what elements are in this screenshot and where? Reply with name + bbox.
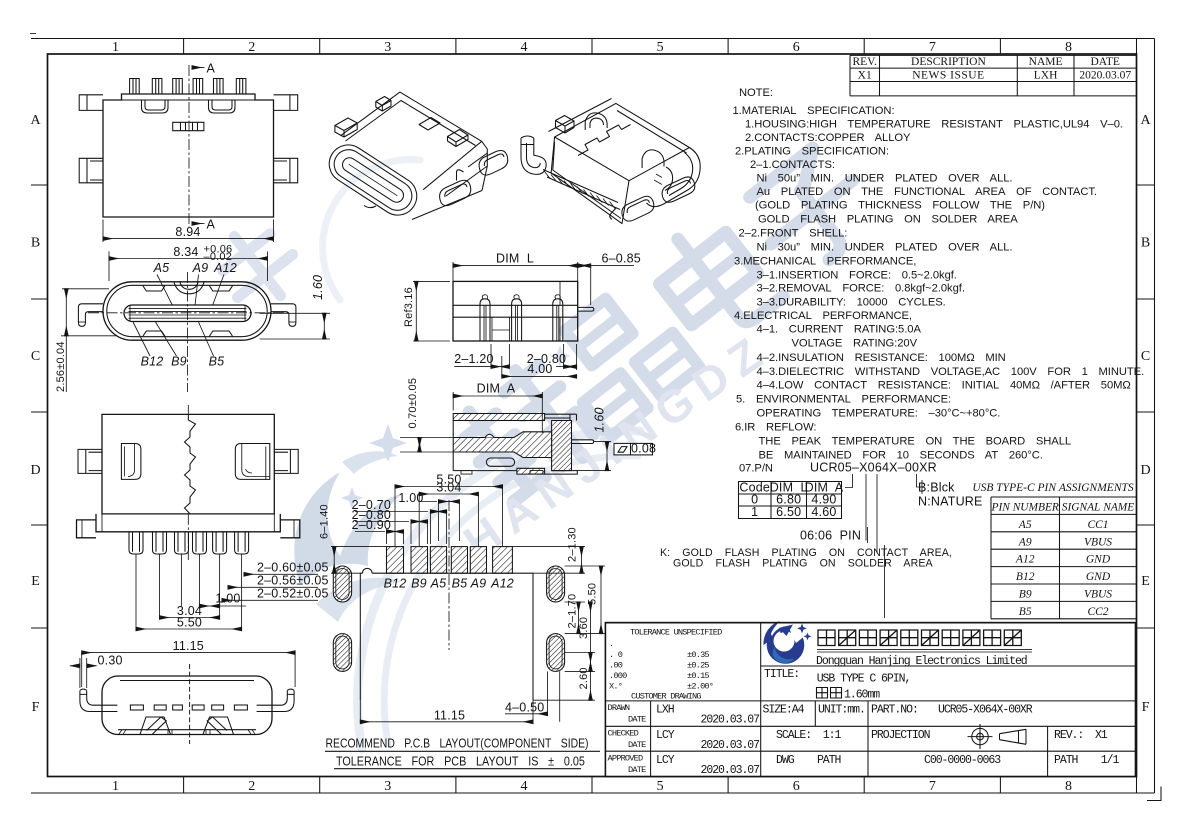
svg-text:B: B bbox=[1141, 236, 1150, 251]
svg-text:3–2.REMOVAL FORCE: 0.8kgf~2.: 3–2.REMOVAL FORCE: 0.8kgf~2.0kgf. bbox=[757, 283, 965, 295]
svg-text:VBUS: VBUS bbox=[1084, 589, 1112, 601]
svg-text:1.00: 1.00 bbox=[215, 592, 240, 606]
svg-text:A5: A5 bbox=[1018, 519, 1032, 531]
svg-text:4: 4 bbox=[521, 779, 528, 794]
svg-text:2–2.FRONT SHELL:: 2–2.FRONT SHELL: bbox=[739, 228, 848, 240]
svg-text:Ni 30u” MIN. UNDER PLATED: Ni 30u” MIN. UNDER PLATED OVER ALL. bbox=[757, 242, 1013, 254]
svg-text:X.°: X.° bbox=[609, 682, 622, 692]
svg-text:LXH: LXH bbox=[1034, 70, 1058, 82]
svg-text:3.MECHANICAL PERFORMANCE,: 3.MECHANICAL PERFORMANCE, bbox=[734, 256, 916, 268]
svg-text:DATE: DATE bbox=[628, 765, 646, 775]
svg-text:4.60: 4.60 bbox=[811, 505, 836, 519]
svg-text:±0.15: ±0.15 bbox=[687, 671, 709, 681]
svg-text:4–0.50: 4–0.50 bbox=[505, 700, 544, 714]
svg-text:1.HOUSING:HIGH TEMPERATURE R: 1.HOUSING:HIGH TEMPERATURE RESISTANT PLA… bbox=[745, 119, 1123, 131]
svg-text:B12: B12 bbox=[384, 577, 407, 591]
svg-text:7: 7 bbox=[929, 779, 936, 794]
svg-text:UCR05–X064X–00XR: UCR05–X064X–00XR bbox=[810, 461, 937, 475]
svg-text:2–0.60±0.05: 2–0.60±0.05 bbox=[257, 561, 329, 575]
svg-text:2–1.CONTACTS:: 2–1.CONTACTS: bbox=[750, 159, 835, 171]
svg-text:B5: B5 bbox=[452, 577, 468, 591]
svg-text:NOTE:: NOTE: bbox=[739, 87, 773, 99]
svg-text:A: A bbox=[207, 62, 216, 76]
svg-text:1.60: 1.60 bbox=[593, 407, 607, 432]
svg-text:2–0.70: 2–0.70 bbox=[352, 498, 391, 512]
svg-text:REV.: X1: REV.: X1 bbox=[1054, 729, 1108, 742]
svg-text:PATH 1/1: PATH 1/1 bbox=[1054, 754, 1120, 767]
svg-text:±2.00°: ±2.00° bbox=[687, 682, 713, 692]
svg-text:GOLD FLASH PLATING ON SOLD: GOLD FLASH PLATING ON SOLDER AREA bbox=[673, 558, 933, 570]
svg-text:USB TYPE C 6PIN,: USB TYPE C 6PIN, bbox=[817, 673, 911, 686]
svg-text:DIM L: DIM L bbox=[496, 251, 534, 265]
svg-text:6–1.40: 6–1.40 bbox=[319, 504, 331, 539]
svg-text:CC1: CC1 bbox=[1087, 519, 1108, 531]
svg-text:5.50: 5.50 bbox=[587, 583, 599, 605]
svg-text:E: E bbox=[1141, 574, 1150, 589]
svg-text:SIZE:A4: SIZE:A4 bbox=[763, 704, 805, 717]
svg-text:A9: A9 bbox=[1018, 536, 1032, 548]
svg-text:PROJECTION: PROJECTION bbox=[871, 729, 930, 742]
svg-text:NEWS ISSUE: NEWS ISSUE bbox=[912, 70, 984, 82]
svg-text:3: 3 bbox=[384, 779, 391, 794]
svg-text:.: . bbox=[609, 639, 613, 649]
svg-text:A12: A12 bbox=[213, 261, 237, 275]
svg-text:B12: B12 bbox=[141, 355, 164, 369]
svg-text:4–2.INSULATION RESISTANCE: 1: 4–2.INSULATION RESISTANCE: 100MΩ MIN bbox=[757, 352, 1006, 364]
svg-text:2–0.56±0.05: 2–0.56±0.05 bbox=[257, 574, 329, 588]
svg-text:B:Blck: B:Blck bbox=[918, 481, 955, 495]
svg-text:LCY: LCY bbox=[656, 729, 675, 742]
svg-text:A12: A12 bbox=[1015, 554, 1035, 566]
svg-text:DIM A: DIM A bbox=[477, 382, 516, 396]
svg-text:07.P/N: 07.P/N bbox=[739, 463, 773, 475]
svg-text:OPERATING TEMPERATURE: –30°C: OPERATING TEMPERATURE: –30°C~+80°C. bbox=[757, 408, 1001, 420]
svg-text:Au PLATED ON THE FUNCTIONA: Au PLATED ON THE FUNCTIONAL AREA OF CONT… bbox=[757, 186, 1097, 198]
svg-text:6–0.85: 6–0.85 bbox=[602, 251, 641, 265]
svg-text:±0.35: ±0.35 bbox=[687, 650, 709, 660]
svg-text:.00: .00 bbox=[609, 661, 623, 671]
svg-text:DATE: DATE bbox=[628, 715, 646, 725]
svg-text:A: A bbox=[30, 113, 41, 128]
svg-text:VBUS: VBUS bbox=[1084, 536, 1112, 548]
svg-text:A9: A9 bbox=[192, 261, 209, 275]
svg-text:A: A bbox=[207, 218, 216, 232]
svg-text:0.70±0.05: 0.70±0.05 bbox=[407, 378, 419, 429]
svg-text:VOLTAGE RATING:20V: VOLTAGE RATING:20V bbox=[792, 338, 918, 350]
svg-text:4–1. CURRENT RATING:5.0A: 4–1. CURRENT RATING:5.0A bbox=[757, 324, 922, 336]
svg-text:6.IR REFLOW:: 6.IR REFLOW: bbox=[735, 422, 816, 434]
svg-text:0.30: 0.30 bbox=[98, 653, 123, 667]
svg-text:B: B bbox=[31, 236, 40, 251]
svg-text:SCALE: 1:1: SCALE: 1:1 bbox=[776, 729, 842, 742]
svg-text:5: 5 bbox=[657, 40, 664, 55]
svg-text:6: 6 bbox=[793, 40, 800, 55]
svg-text:B9: B9 bbox=[411, 577, 427, 591]
svg-text:TOLERANCE FOR PCB LAYOUT I: TOLERANCE FOR PCB LAYOUT IS ± 0.05 bbox=[336, 755, 585, 769]
svg-text:(GOLD PLATING THICKNESS FOL: (GOLD PLATING THICKNESS FOLLOW THE P/N) bbox=[755, 200, 1045, 212]
svg-text:F: F bbox=[32, 700, 40, 715]
svg-text:PART.NO:: PART.NO: bbox=[871, 704, 918, 717]
svg-text:1: 1 bbox=[112, 779, 119, 794]
svg-text:2.CONTACTS:COPPER ALLOY: 2.CONTACTS:COPPER ALLOY bbox=[745, 132, 911, 144]
svg-text:NAME: NAME bbox=[1029, 56, 1063, 68]
svg-text:CC2: CC2 bbox=[1087, 606, 1108, 618]
svg-text:B5: B5 bbox=[1019, 606, 1032, 618]
svg-text:6.50: 6.50 bbox=[776, 505, 801, 519]
svg-text:C: C bbox=[1141, 349, 1150, 364]
svg-text:5. ENVIRONMENTAL PERFORMANCE: 5. ENVIRONMENTAL PERFORMANCE: bbox=[736, 394, 951, 406]
svg-text:. 0: . 0 bbox=[609, 650, 623, 660]
svg-text:A5: A5 bbox=[153, 261, 170, 275]
svg-text:DATE: DATE bbox=[628, 740, 646, 750]
svg-text:11.15: 11.15 bbox=[173, 639, 204, 653]
svg-text:3.60: 3.60 bbox=[578, 617, 590, 639]
svg-text:1.MATERIAL SPECIFICATION:: 1.MATERIAL SPECIFICATION: bbox=[733, 105, 895, 117]
svg-text:C: C bbox=[31, 349, 40, 364]
svg-text:5.50: 5.50 bbox=[436, 473, 461, 487]
svg-text:DWG PATH: DWG PATH bbox=[776, 754, 841, 767]
svg-text:X1: X1 bbox=[858, 70, 872, 82]
svg-text:2020.03.07: 2020.03.07 bbox=[701, 764, 760, 777]
svg-text:2.60: 2.60 bbox=[578, 667, 590, 689]
svg-text:N:NATURE: N:NATURE bbox=[918, 495, 983, 509]
svg-text:11.15: 11.15 bbox=[434, 709, 465, 723]
svg-text:4–4.LOW CONTACT RESISTANCE:: 4–4.LOW CONTACT RESISTANCE: INITIAL 40MΩ… bbox=[757, 380, 1131, 392]
svg-text:4–3.DIELECTRIC WITHSTAND VOL: 4–3.DIELECTRIC WITHSTAND VOLTAGE,AC 100V… bbox=[757, 366, 1145, 378]
svg-text:2020.03.07: 2020.03.07 bbox=[701, 739, 760, 752]
svg-text:5: 5 bbox=[657, 779, 664, 794]
svg-text:2–1.70: 2–1.70 bbox=[567, 594, 579, 629]
svg-text:GND: GND bbox=[1086, 554, 1111, 566]
svg-text:B5: B5 bbox=[209, 355, 225, 369]
svg-text:UCR05-X064X-00XR: UCR05-X064X-00XR bbox=[938, 704, 1033, 717]
svg-text:A: A bbox=[1140, 113, 1151, 128]
svg-text:B9: B9 bbox=[1019, 589, 1032, 601]
svg-text:APPROVED: APPROVED bbox=[608, 754, 643, 764]
svg-text:2–0.52±0.05: 2–0.52±0.05 bbox=[257, 587, 329, 601]
svg-text:2–1.30: 2–1.30 bbox=[567, 527, 579, 562]
svg-text:2020.03.07: 2020.03.07 bbox=[701, 714, 760, 727]
svg-text:2.56±0.04: 2.56±0.04 bbox=[55, 341, 67, 392]
svg-text:3–1.INSERTION FORCE: 0.5~2.0: 3–1.INSERTION FORCE: 0.5~2.0kgf. bbox=[757, 270, 957, 282]
svg-text:1.00: 1.00 bbox=[398, 491, 423, 505]
svg-text:PIN NUMBER: PIN NUMBER bbox=[991, 502, 1059, 514]
svg-text:8: 8 bbox=[1065, 779, 1072, 794]
svg-text:USB TYPE-C PIN ASSIGNMENTS: USB TYPE-C PIN ASSIGNMENTS bbox=[972, 482, 1134, 494]
svg-text:A9: A9 bbox=[470, 577, 487, 591]
svg-text:3: 3 bbox=[384, 40, 391, 55]
svg-text:LCY: LCY bbox=[656, 754, 675, 767]
svg-text:Ni 50u” MIN. UNDER PLATED: Ni 50u” MIN. UNDER PLATED OVER ALL. bbox=[757, 173, 1013, 185]
svg-text:GND: GND bbox=[1086, 571, 1111, 583]
svg-text:TITLE:: TITLE: bbox=[764, 668, 799, 681]
svg-text:2–1.20: 2–1.20 bbox=[454, 352, 493, 366]
svg-text:D: D bbox=[1140, 463, 1150, 478]
svg-text:1.60: 1.60 bbox=[311, 275, 325, 300]
svg-text:A12: A12 bbox=[490, 577, 514, 591]
svg-text:8.94: 8.94 bbox=[175, 225, 200, 239]
svg-text:SIGNAL NAME: SIGNAL NAME bbox=[1062, 502, 1134, 514]
svg-text:DRAWN: DRAWN bbox=[608, 703, 630, 713]
svg-text:2.PLATING SPECIFICATION:: 2.PLATING SPECIFICATION: bbox=[735, 146, 889, 158]
svg-text:2020.03.07: 2020.03.07 bbox=[1079, 70, 1131, 82]
svg-text:RECOMMEND P.C.B LAYOUT(COMPO: RECOMMEND P.C.B LAYOUT(COMPONENT SIDE) bbox=[326, 737, 589, 750]
svg-text:2: 2 bbox=[248, 40, 255, 55]
svg-text:A5: A5 bbox=[430, 577, 447, 591]
svg-text:Dongguan Hanjing Electronics L: Dongguan Hanjing Electronics Limited bbox=[816, 655, 1027, 668]
svg-text:DESCRIPTION: DESCRIPTION bbox=[911, 56, 986, 68]
svg-text:CUSTOMER DRAWING: CUSTOMER DRAWING bbox=[631, 692, 701, 702]
svg-text:GOLD FLASH PLATING ON SOLD: GOLD FLASH PLATING ON SOLDER AREA bbox=[758, 214, 1018, 226]
svg-text:1.60mm: 1.60mm bbox=[844, 689, 880, 702]
svg-text:8: 8 bbox=[1065, 40, 1072, 55]
svg-text:THE PEAK TEMPERATURE ON TH: THE PEAK TEMPERATURE ON THE BOARD SHALL bbox=[759, 436, 1072, 448]
svg-text:06:06 PIN: 06:06 PIN bbox=[800, 529, 861, 543]
svg-text:5.50: 5.50 bbox=[177, 615, 202, 629]
svg-text:2: 2 bbox=[248, 779, 255, 794]
svg-text:D: D bbox=[30, 463, 40, 478]
svg-text:F: F bbox=[1142, 700, 1150, 715]
svg-text:REV.: REV. bbox=[852, 56, 877, 68]
svg-text:6: 6 bbox=[793, 779, 800, 794]
svg-text:7: 7 bbox=[929, 40, 936, 55]
svg-text:4: 4 bbox=[521, 40, 528, 55]
svg-text:E: E bbox=[31, 574, 40, 589]
svg-text:B9: B9 bbox=[171, 355, 187, 369]
svg-text:DATE: DATE bbox=[1091, 56, 1120, 68]
svg-text:±0.25: ±0.25 bbox=[687, 661, 709, 671]
svg-text:UNIT:mm.: UNIT:mm. bbox=[818, 704, 865, 717]
svg-text:TOLERANCE UNSPECIFIED: TOLERANCE UNSPECIFIED bbox=[630, 628, 722, 638]
svg-text:4.00: 4.00 bbox=[527, 362, 552, 376]
svg-text:CHECKED: CHECKED bbox=[608, 729, 639, 739]
svg-text:Ref3.16: Ref3.16 bbox=[403, 287, 415, 327]
svg-text:.000: .000 bbox=[609, 671, 627, 681]
svg-text:LXH: LXH bbox=[656, 704, 674, 717]
svg-text:1: 1 bbox=[112, 40, 119, 55]
svg-text:8.34: 8.34 bbox=[173, 245, 198, 259]
svg-text:C00-0000-0063: C00-0000-0063 bbox=[924, 754, 1001, 767]
svg-text:4.ELECTRICAL PERFORMANCE,: 4.ELECTRICAL PERFORMANCE, bbox=[734, 310, 912, 322]
svg-text:0.08: 0.08 bbox=[631, 442, 656, 456]
svg-text:3–3.DURABILITY: 10000 CYCLES: 3–3.DURABILITY: 10000 CYCLES. bbox=[757, 297, 946, 309]
svg-text:B12: B12 bbox=[1016, 571, 1035, 583]
svg-text:1: 1 bbox=[751, 505, 758, 519]
